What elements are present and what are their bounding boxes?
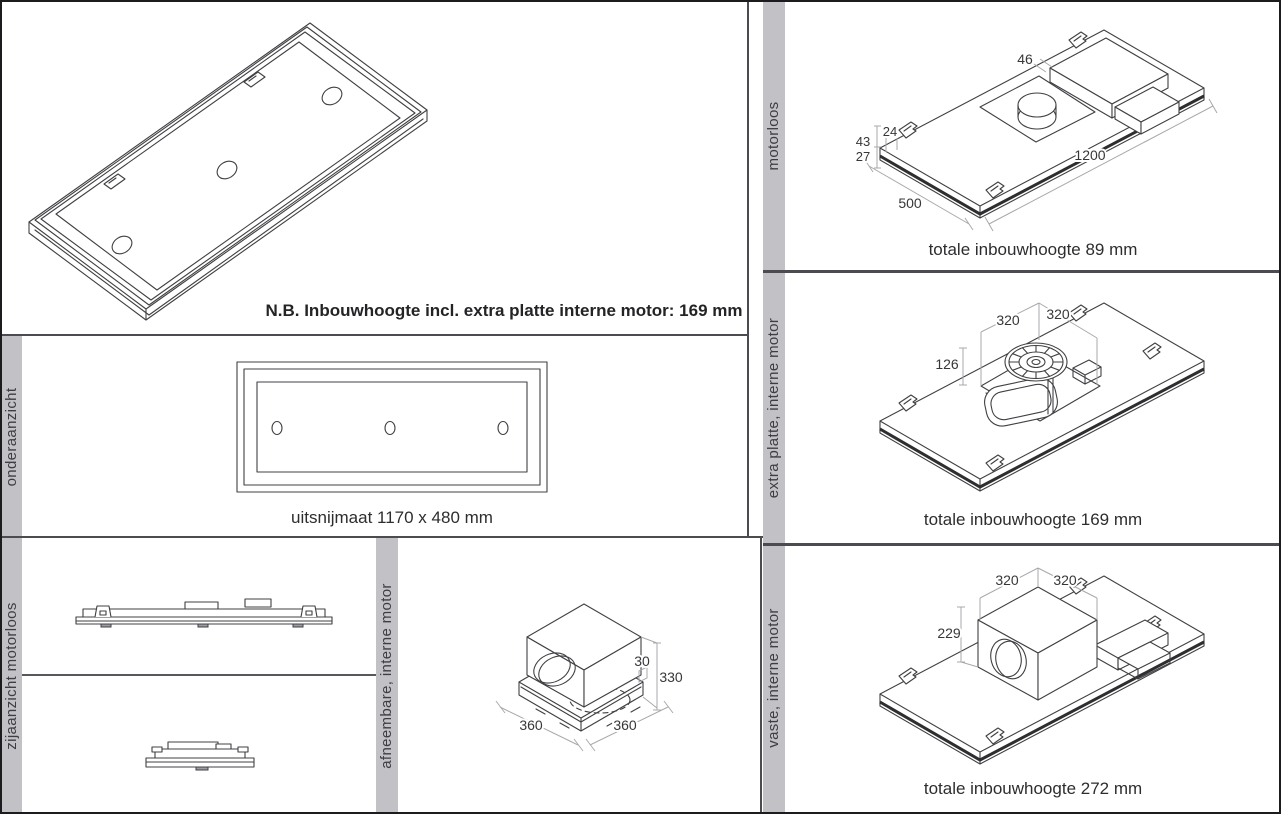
caption-uitsnijmaat: uitsnijmaat 1170 x 480 mm xyxy=(142,508,642,528)
dim-motorloos-edge-total: 43 xyxy=(856,134,870,149)
dim-motorloos-edge-lower: 27 xyxy=(856,149,870,164)
label-extra-platte: extra platte, interne motor xyxy=(764,298,784,518)
dim-vaste-w: 320 xyxy=(995,572,1019,588)
label-onderaanzicht: onderaanzicht xyxy=(2,327,22,547)
dim-vaste-h: 229 xyxy=(937,625,961,641)
dim-motorloos-duct: 46 xyxy=(1017,51,1033,67)
onderaanzicht-drawing xyxy=(237,362,547,492)
label-vaste: vaste, interne motor xyxy=(764,568,784,788)
dim-extraplatte-d: 320 xyxy=(1046,306,1070,322)
dim-motorloos-depth: 500 xyxy=(898,195,922,211)
caption-inbouwhoogte-272: totale inbouwhoogte 272 mm xyxy=(787,779,1279,799)
caption-inbouwhoogte-169: totale inbouwhoogte 169 mm xyxy=(787,510,1279,530)
dim-afneembare-depth: 360 xyxy=(613,717,637,733)
drawings-layer: 360 360 30 330 43 27 24 xyxy=(0,0,1281,814)
dim-motorloos-tab: 24 xyxy=(883,124,897,139)
label-motorloos: motorloos xyxy=(764,26,784,246)
dim-vaste-d: 320 xyxy=(1053,572,1077,588)
dim-extraplatte-h: 126 xyxy=(935,356,959,372)
afneembare-motor-drawing: 360 360 30 330 xyxy=(496,604,683,751)
caption-inbouwhoogte-89: totale inbouwhoogte 89 mm xyxy=(787,240,1279,260)
zijaanzicht-drawings xyxy=(76,599,332,770)
label-afneembare: afneembare, interne motor xyxy=(377,566,397,786)
label-zijaanzicht: zijaanzicht motorloos xyxy=(2,566,22,786)
dim-afneembare-plate-h: 30 xyxy=(634,653,650,669)
technical-spec-sheet: 360 360 30 330 43 27 24 xyxy=(0,0,1281,814)
dim-afneembare-total-h: 330 xyxy=(659,669,683,685)
installation-note: N.B. Inbouwhoogte incl. extra platte int… xyxy=(258,301,750,321)
dim-motorloos-length: 1200 xyxy=(1074,147,1105,163)
dim-extraplatte-w: 320 xyxy=(996,312,1020,328)
isometric-ceiling-unit-drawing xyxy=(29,23,427,320)
dim-afneembare-width: 360 xyxy=(519,717,543,733)
